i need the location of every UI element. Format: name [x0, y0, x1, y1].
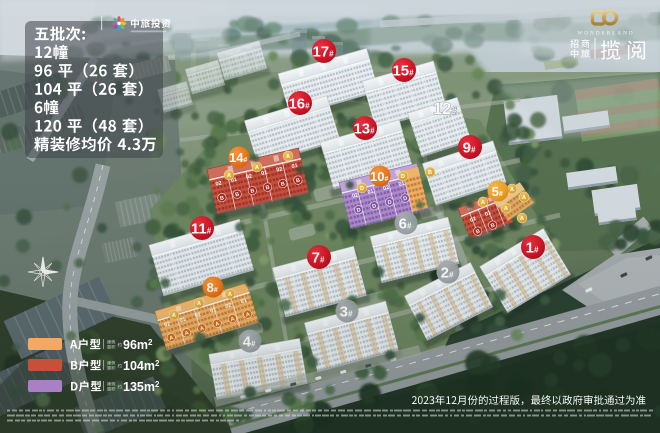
svg-text:135m2: 135m2: [123, 380, 160, 394]
svg-text:WONDERLAND: WONDERLAND: [577, 31, 634, 37]
svg-text:104m2: 104m2: [123, 359, 160, 373]
